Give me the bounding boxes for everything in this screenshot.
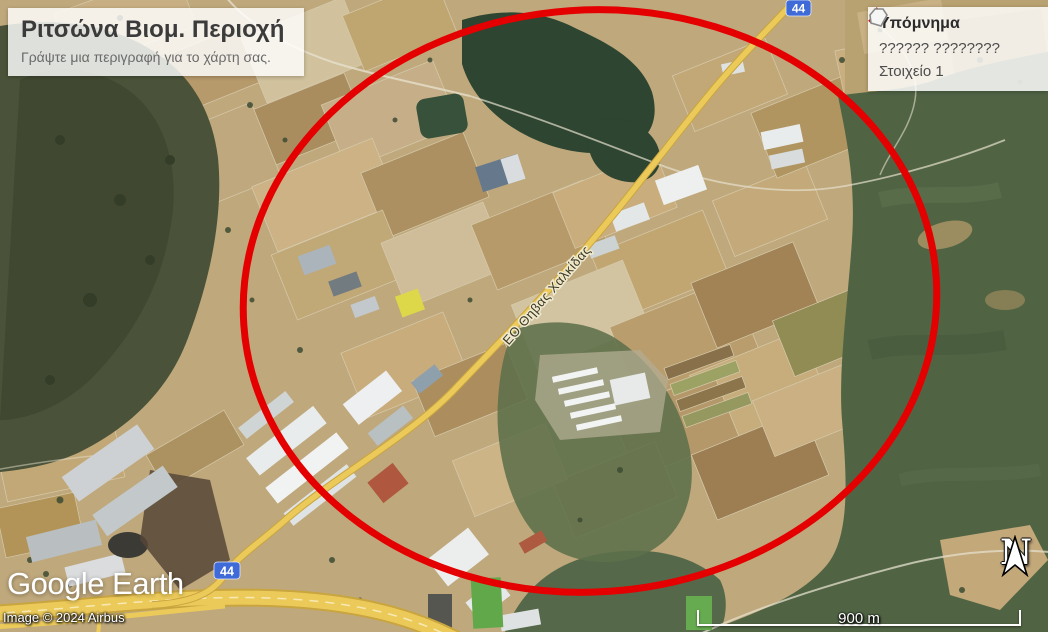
imagery-attribution: Image © 2024 Airbus — [3, 610, 125, 625]
white-polygon-icon — [868, 7, 889, 28]
legend-item-label: Στοιχείο 1 — [879, 63, 944, 80]
legend-item-label: ?????? ???????? — [879, 40, 1000, 57]
map-description-placeholder: Γράψτε μια περιγραφή για το χάρτη σας. — [21, 49, 291, 65]
north-indicator: N — [993, 535, 1039, 569]
legend-title: Υπόμνημα — [879, 15, 1037, 33]
svg-text:44: 44 — [792, 2, 806, 16]
scale-bar: 900 m — [697, 610, 1021, 626]
legend-item-path[interactable]: ?????? ???????? — [879, 40, 1037, 57]
google-earth-logo: Google Earth — [7, 566, 184, 602]
svg-text:44: 44 — [220, 565, 234, 579]
legend-panel: Υπόμνημα ?????? ???????? Στοιχείο 1 — [868, 7, 1048, 91]
scale-label: 900 m — [699, 610, 1019, 627]
google-earth-map-view: ΕΟ Θηβας Χαλκίδας 44 44 Ριτσώνα Βιομ. Πε… — [0, 0, 1048, 632]
north-arrow-icon — [993, 535, 1037, 577]
legend-item-element1[interactable]: Στοιχείο 1 — [879, 63, 1037, 80]
route-shield-bottom: 44 — [214, 562, 240, 579]
map-title: Ριτσώνα Βιομ. Περιοχή — [21, 17, 291, 44]
map-title-box[interactable]: Ριτσώνα Βιομ. Περιοχή Γράψτε μια περιγρα… — [8, 8, 304, 76]
route-shield-top: 44 — [786, 0, 811, 16]
satellite-map-canvas[interactable]: ΕΟ Θηβας Χαλκίδας 44 44 — [0, 0, 1048, 632]
